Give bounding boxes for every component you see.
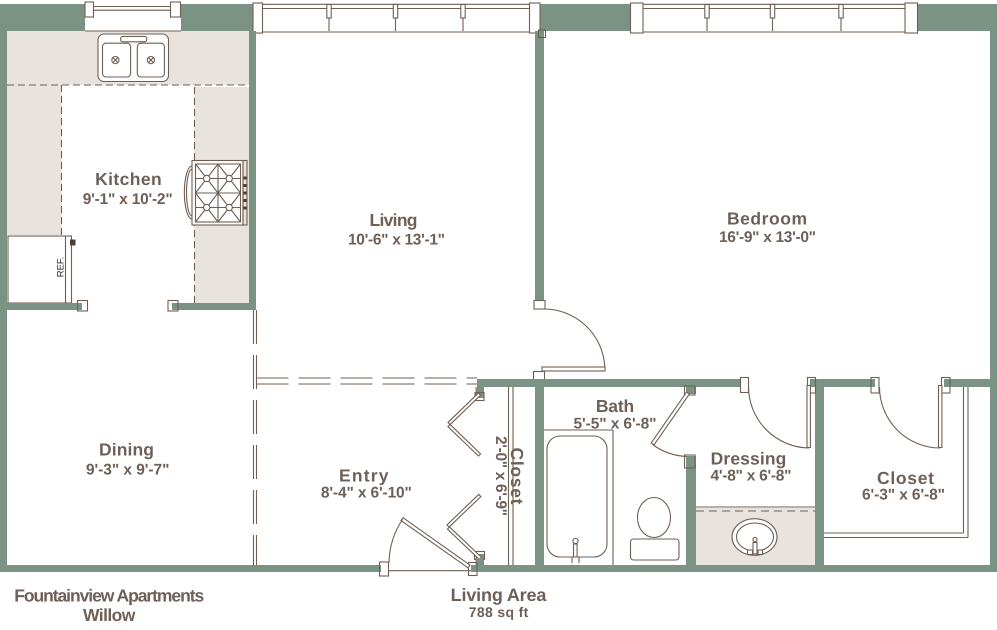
svg-text:Living Area: Living Area: [451, 585, 548, 605]
svg-text:5'-5" x 6'-8": 5'-5" x 6'-8": [574, 416, 657, 433]
svg-text:9'-1" x 10'-2": 9'-1" x 10'-2": [83, 191, 173, 208]
svg-text:Kitchen: Kitchen: [95, 169, 162, 189]
svg-text:Bedroom: Bedroom: [727, 209, 807, 229]
svg-text:Closet: Closet: [877, 468, 934, 488]
svg-text:Willow: Willow: [83, 605, 136, 625]
svg-text:Dining: Dining: [99, 440, 154, 460]
svg-text:16'-9" x 13'-0": 16'-9" x 13'-0": [719, 229, 816, 246]
svg-text:Closet: Closet: [507, 448, 527, 505]
svg-text:6'-3" x 6'-8": 6'-3" x 6'-8": [862, 487, 945, 504]
svg-text:2'-0" x 6'-9": 2'-0" x 6'-9": [492, 436, 509, 516]
svg-text:4'-8" x 6'-8": 4'-8" x 6'-8": [711, 468, 792, 485]
svg-text:788 sq ft: 788 sq ft: [469, 604, 529, 620]
svg-text:REF.: REF.: [56, 257, 67, 278]
svg-text:Living: Living: [370, 210, 418, 230]
svg-text:Fountainview Apartments: Fountainview Apartments: [14, 586, 204, 606]
svg-text:8'-4" x 6'-10": 8'-4" x 6'-10": [321, 485, 412, 502]
svg-text:Dressing: Dressing: [711, 449, 787, 469]
svg-text:Bath: Bath: [596, 396, 634, 416]
svg-text:9'-3" x 9'-7": 9'-3" x 9'-7": [86, 462, 170, 479]
svg-text:Entry: Entry: [339, 466, 389, 486]
svg-text:10'-6" x 13'-1": 10'-6" x 13'-1": [348, 232, 445, 249]
